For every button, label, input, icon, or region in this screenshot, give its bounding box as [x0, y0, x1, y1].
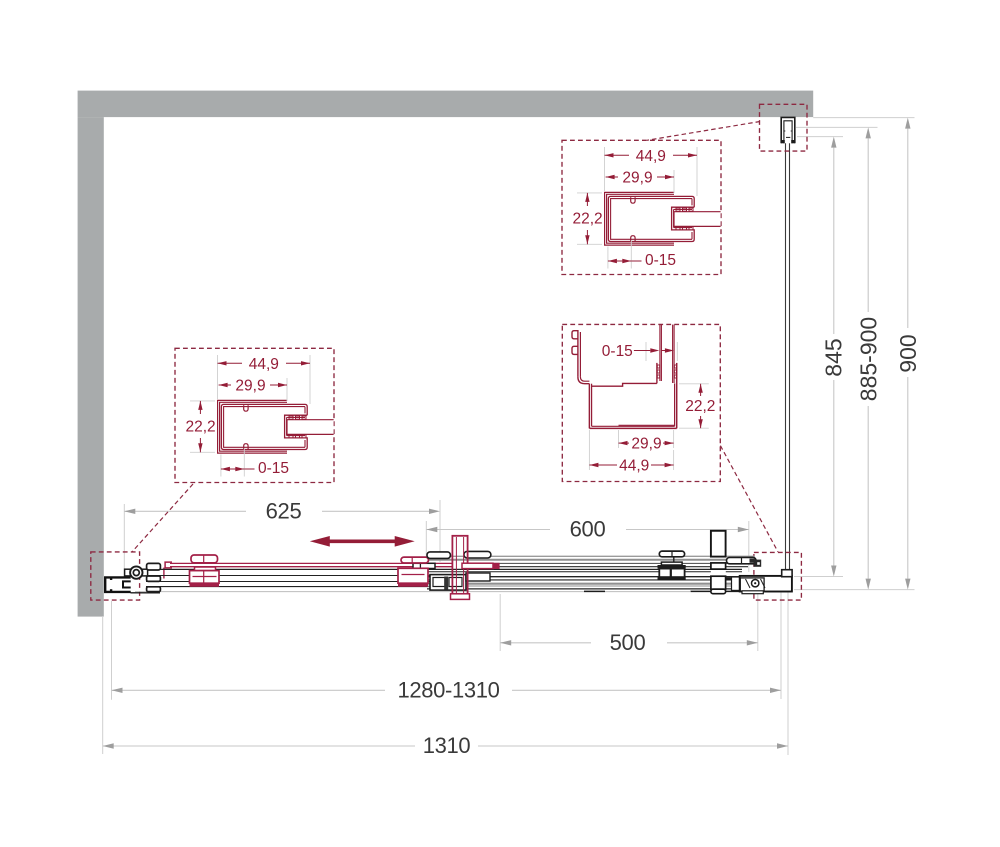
svg-text:0-15: 0-15	[645, 252, 676, 269]
svg-text:29,9: 29,9	[631, 436, 661, 453]
svg-text:44,9: 44,9	[636, 148, 666, 165]
svg-text:22,2: 22,2	[573, 210, 603, 227]
svg-text:885-900: 885-900	[855, 317, 881, 401]
svg-text:625: 625	[266, 498, 302, 523]
svg-text:500: 500	[610, 630, 646, 655]
svg-text:44,9: 44,9	[619, 458, 649, 475]
svg-text:1280-1310: 1280-1310	[397, 677, 499, 702]
svg-text:900: 900	[895, 334, 921, 372]
svg-text:600: 600	[570, 517, 606, 542]
svg-text:22,2: 22,2	[685, 398, 715, 415]
svg-text:29,9: 29,9	[622, 170, 652, 187]
svg-text:0-15: 0-15	[602, 343, 633, 360]
svg-text:1310: 1310	[423, 733, 471, 758]
svg-text:845: 845	[821, 338, 847, 376]
